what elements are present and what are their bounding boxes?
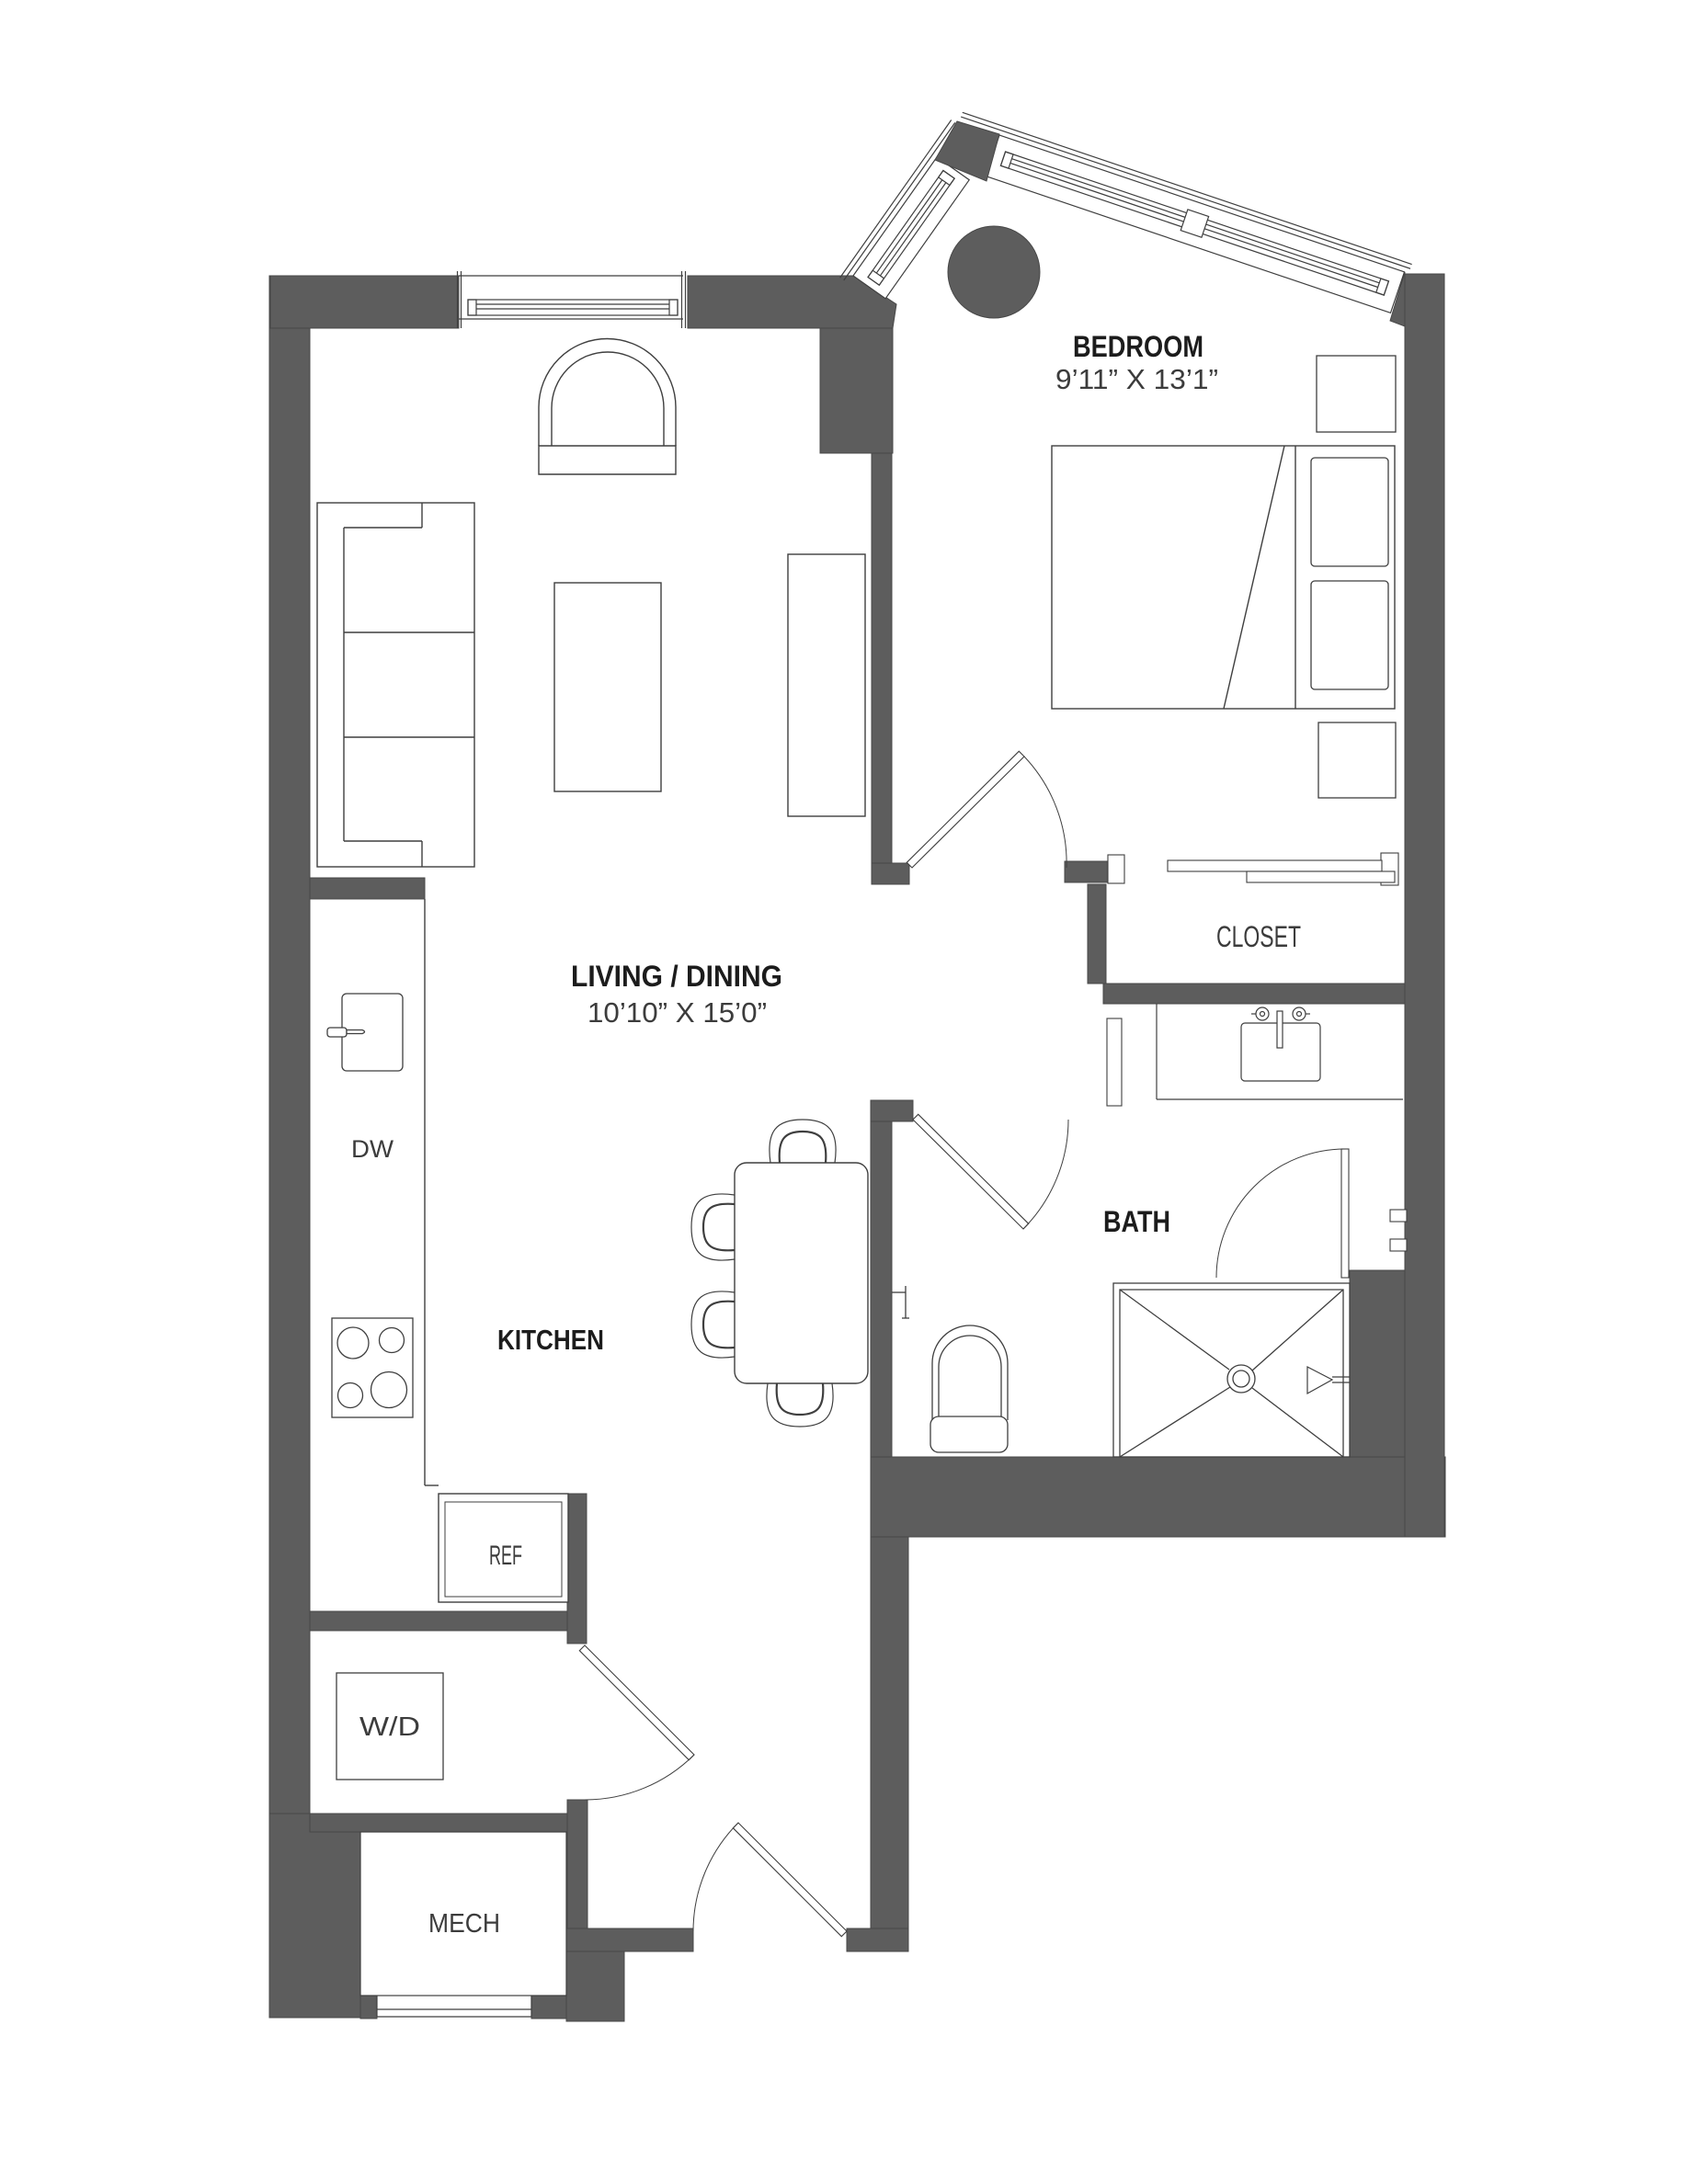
svg-text:CLOSET: CLOSET xyxy=(1216,920,1301,953)
svg-text:REF: REF xyxy=(489,1541,522,1571)
svg-text:W/D: W/D xyxy=(359,1712,420,1742)
svg-text:DW: DW xyxy=(351,1135,394,1163)
svg-text:MECH: MECH xyxy=(428,1909,500,1939)
svg-text:BEDROOM: BEDROOM xyxy=(1073,330,1203,363)
svg-text:BATH: BATH xyxy=(1103,1205,1170,1238)
svg-text:10’10” X 15’0”: 10’10” X 15’0” xyxy=(587,996,767,1029)
svg-text:KITCHEN: KITCHEN xyxy=(497,1324,604,1356)
svg-text:9’11” X 13’1”: 9’11” X 13’1” xyxy=(1055,363,1218,395)
svg-text:LIVING / DINING: LIVING / DINING xyxy=(571,960,782,993)
